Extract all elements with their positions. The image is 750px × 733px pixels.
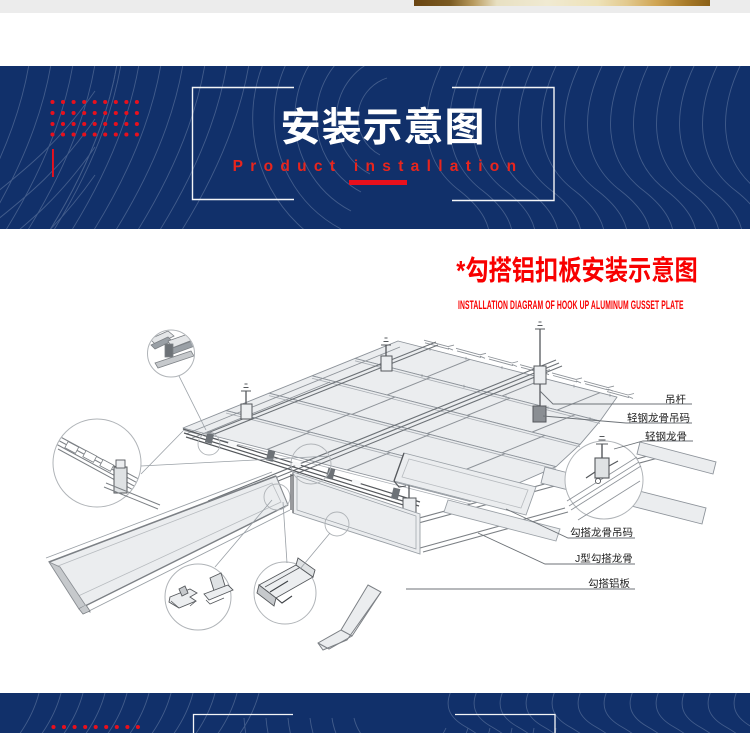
svg-text:勾搭铝板: 勾搭铝板	[588, 578, 630, 590]
svg-text:J型勾搭龙骨: J型勾搭龙骨	[575, 552, 633, 565]
svg-text:吊杆: 吊杆	[665, 394, 686, 406]
svg-text:勾搭龙骨吊码: 勾搭龙骨吊码	[570, 526, 633, 539]
svg-text:轻钢龙骨吊码: 轻钢龙骨吊码	[627, 412, 690, 425]
svg-text:轻钢龙骨: 轻钢龙骨	[645, 430, 687, 443]
